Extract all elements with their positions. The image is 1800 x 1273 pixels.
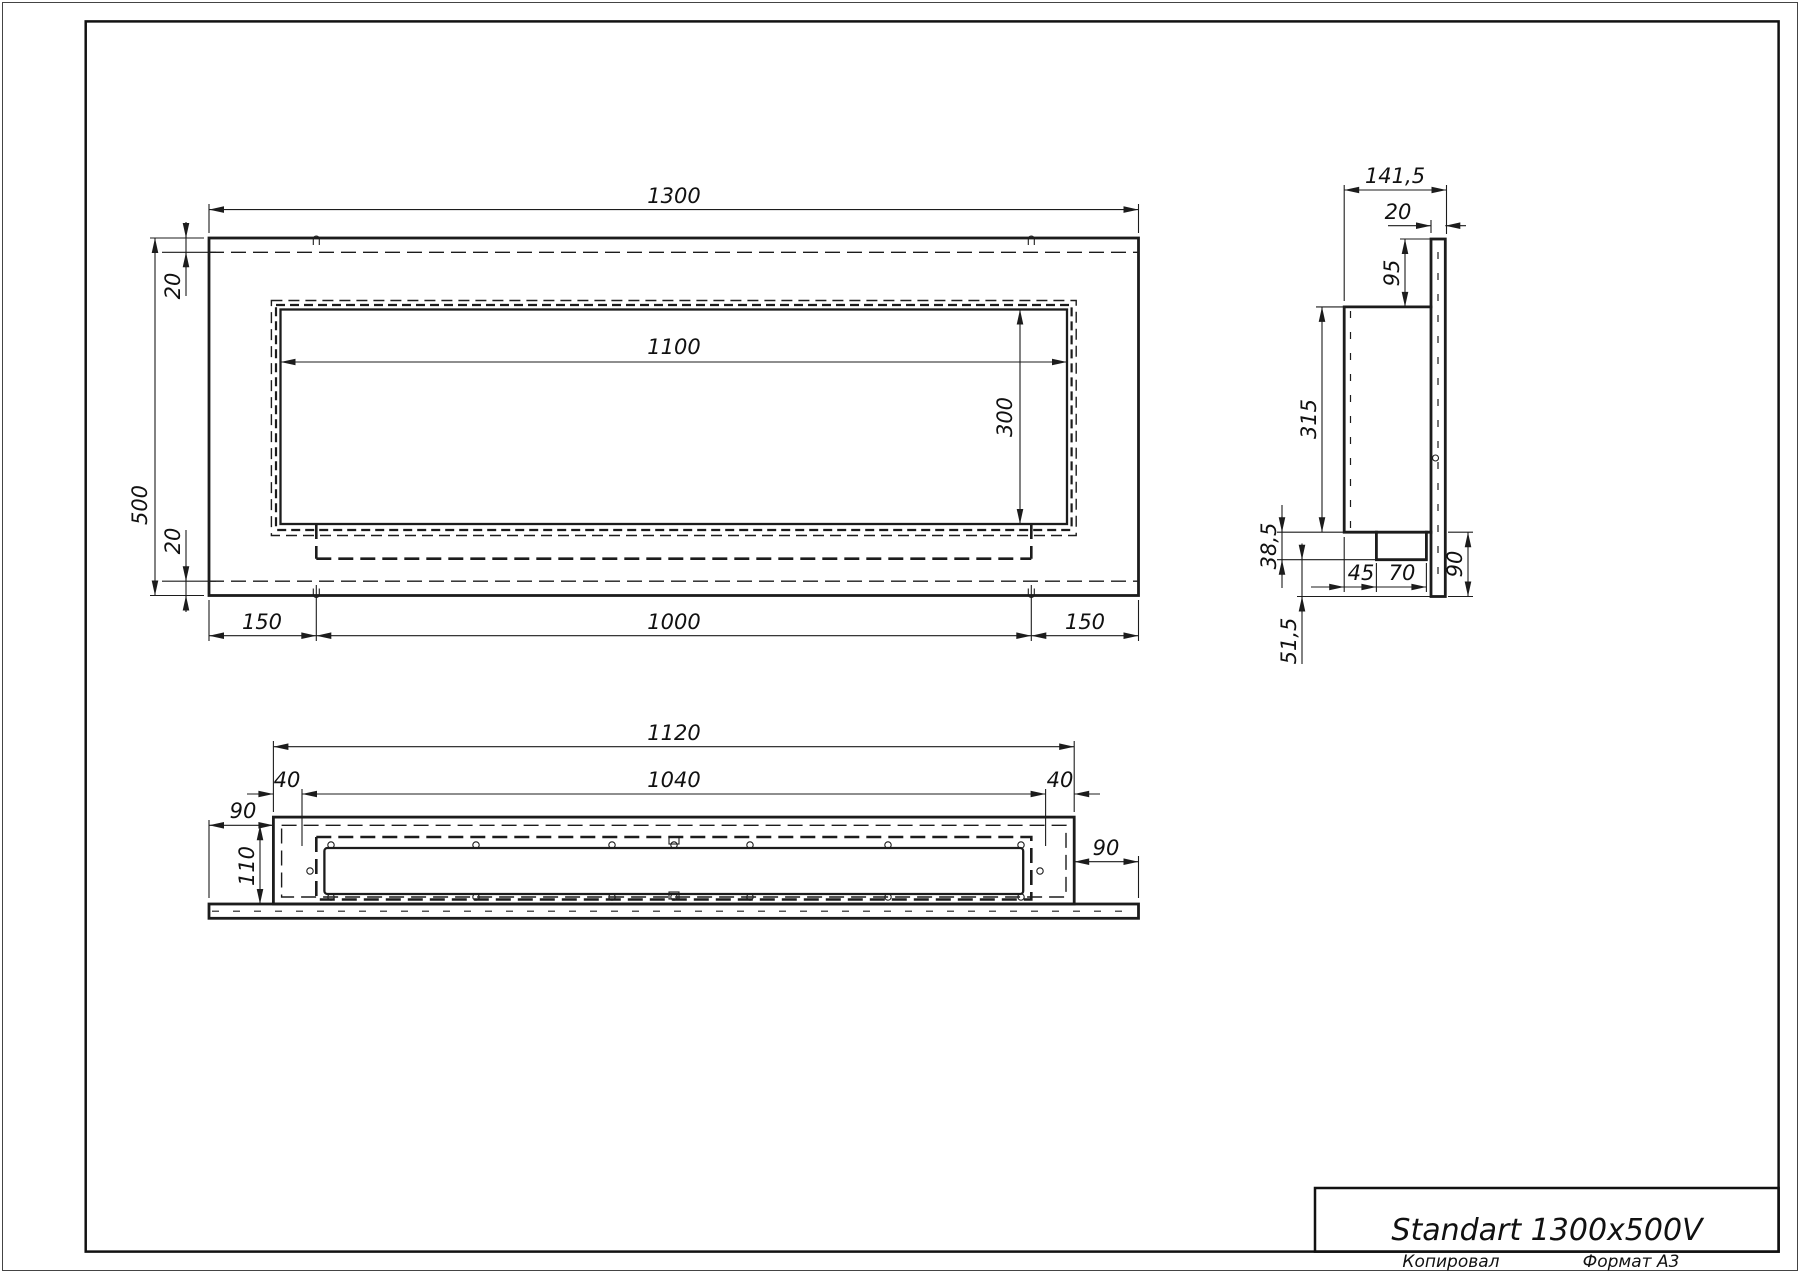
title-block-title: Standart 1300x500V: [1391, 1213, 1705, 1248]
dim-label-front-height: 500: [128, 485, 152, 525]
dim-panel-thickness: 20: [1385, 200, 1466, 233]
dim-label-inset-left: 40: [274, 768, 301, 792]
title-block: Standart 1300x500V Копировал Формат А3: [1315, 1188, 1779, 1272]
drawing-canvas: 1300 500 20 20 1100: [0, 0, 1800, 1273]
drawing-sheet: 1300 500 20 20 1100: [0, 0, 1800, 1273]
panel-strip-outline: [209, 904, 1139, 918]
fastener-holes: [307, 842, 1043, 900]
title-block-copied-label: Копировал: [1402, 1252, 1499, 1272]
dim-label-body-height: 315: [1297, 399, 1321, 439]
front-panel-edge: [1431, 239, 1445, 597]
dim-label-pocket-offset: 45: [1348, 561, 1375, 585]
dim-label-left-margin: 150: [242, 610, 282, 634]
dim-side-top-inset: 95: [1380, 239, 1431, 307]
dim-label-pocket-depth: 70: [1389, 561, 1416, 585]
dim-label-inset-right: 40: [1047, 768, 1074, 792]
dim-label-panel-thickness: 20: [1385, 200, 1412, 224]
dim-label-step-height: 38,5: [1257, 523, 1281, 570]
burner-box-hidden: [316, 837, 1031, 900]
dim-opening-width: 1100: [281, 335, 1068, 362]
dim-inner-depth: 110: [235, 825, 260, 904]
dim-overhang-right: 90: [1074, 836, 1138, 898]
dim-label-right-margin: 150: [1065, 610, 1105, 634]
body-bottom-outline: [273, 817, 1074, 904]
dim-label-front-edge-top: 20: [161, 273, 185, 300]
title-block-format-label: Формат А3: [1583, 1252, 1680, 1272]
dim-body-width: 1120: [273, 721, 1074, 812]
dim-label-body-width: 1120: [647, 721, 700, 745]
dim-label-side-lower-height: 90: [1443, 551, 1467, 578]
dim-label-front-edge-bottom: 20: [161, 528, 185, 555]
dim-inner-width-chain: 40 1040 40: [247, 768, 1100, 846]
front-view: 1300 500 20 20 1100: [128, 184, 1139, 641]
dim-label-overhang-left: 90: [230, 799, 257, 823]
fastener-hole-icon: [1433, 455, 1439, 461]
dim-label-front-width: 1300: [647, 184, 700, 208]
bottom-view: 1120 40 1040 40 90 110 90: [209, 721, 1139, 918]
dim-label-burner-width: 1000: [647, 610, 700, 634]
dim-front-width: 1300: [209, 184, 1139, 233]
dim-label-opening-width: 1100: [647, 335, 700, 359]
drawing-frame: [86, 21, 1779, 1251]
dim-body-height: 315: [1277, 307, 1344, 532]
dim-pocket-chain: 45 70: [1311, 537, 1426, 592]
dim-label-overhang-right: 90: [1093, 836, 1120, 860]
dim-label-bottom-inset: 51,5: [1277, 618, 1301, 665]
dim-front-bottom-chain: 150 1000 150: [209, 585, 1139, 641]
dim-side-lower-height: 90: [1443, 532, 1473, 596]
side-view: 141,5 20 95 315 38,5: [1257, 164, 1473, 664]
dim-label-side-top-inset: 95: [1380, 260, 1404, 287]
dim-label-inner-depth: 110: [235, 846, 259, 886]
dim-opening-height: 300: [993, 310, 1020, 525]
dim-label-side-depth: 141,5: [1365, 164, 1425, 188]
dim-label-inner-width: 1040: [647, 768, 700, 792]
tray-pocket-outline: [1376, 532, 1426, 560]
page-edge: [3, 3, 1798, 1271]
body-outline: [1344, 307, 1431, 532]
tray-pocket-bottom: [324, 848, 1023, 894]
dim-label-opening-height: 300: [993, 397, 1017, 437]
